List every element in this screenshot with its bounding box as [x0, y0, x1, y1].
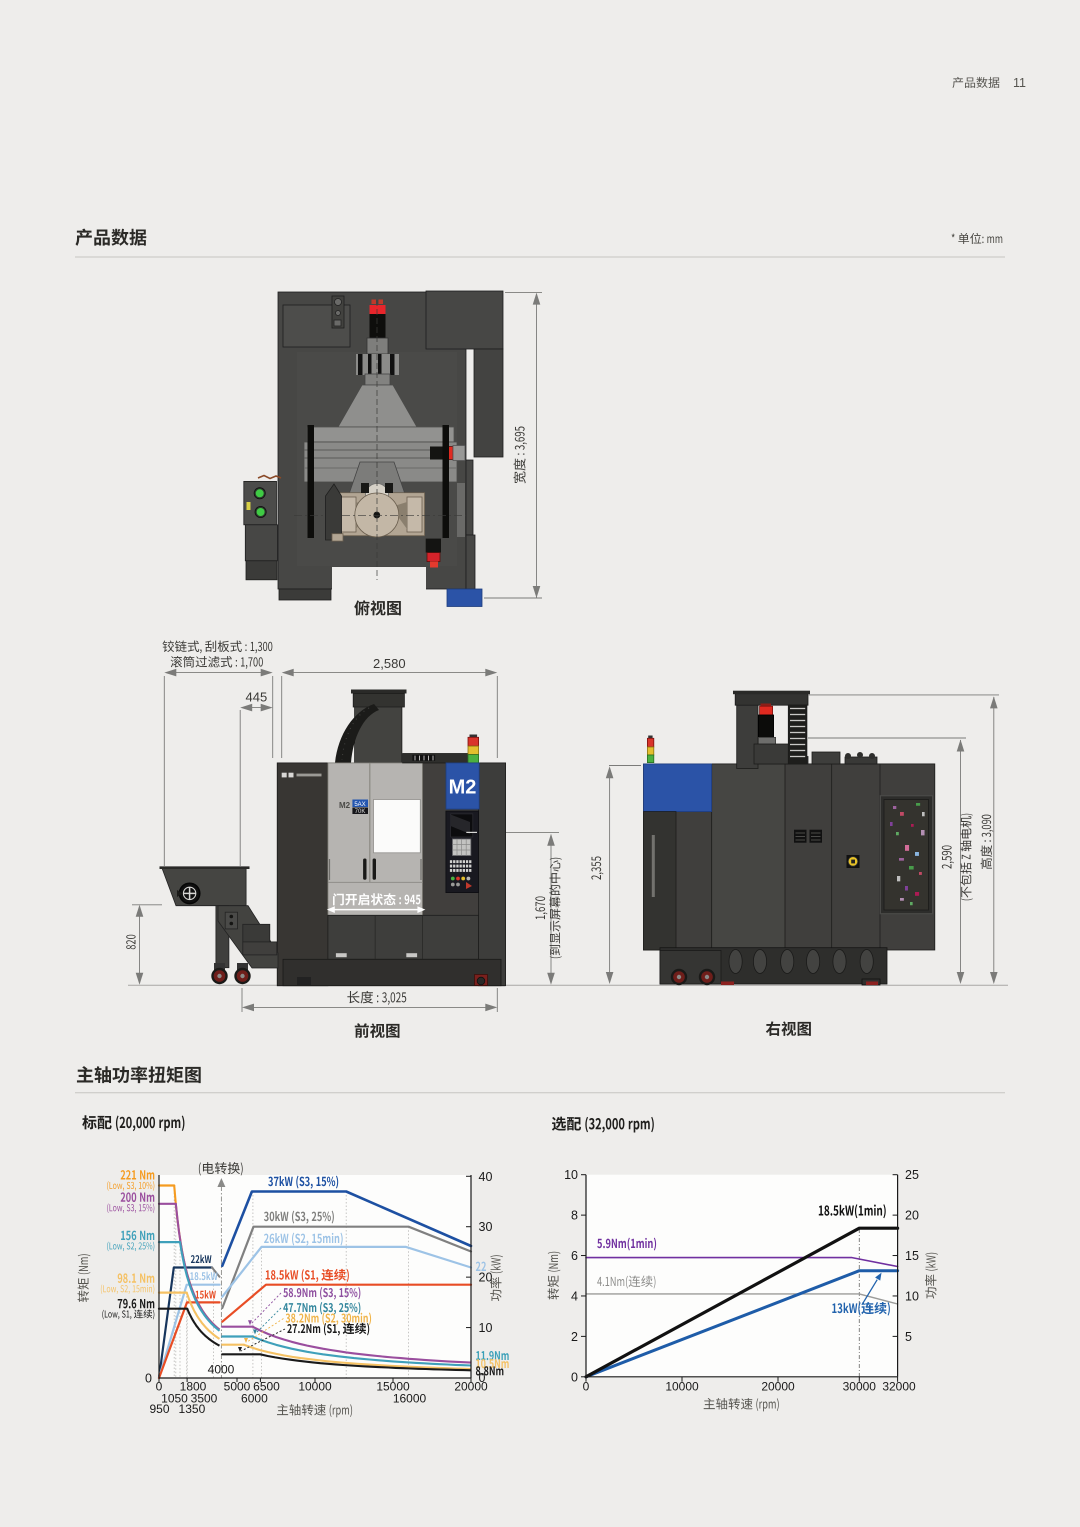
svg-text:6000: 6000: [241, 1392, 268, 1406]
svg-text:32000: 32000: [882, 1380, 916, 1394]
svg-text:8: 8: [571, 1209, 578, 1223]
svg-text:20000: 20000: [761, 1380, 795, 1394]
svg-text:30000: 30000: [843, 1380, 877, 1394]
svg-text:25: 25: [905, 1168, 919, 1182]
svg-text:10: 10: [905, 1289, 919, 1303]
svg-text:2: 2: [571, 1330, 578, 1344]
svg-text:10000: 10000: [298, 1380, 332, 1394]
svg-text:40: 40: [479, 1170, 493, 1184]
svg-text:5AX: 5AX: [354, 802, 365, 808]
svg-text:10: 10: [479, 1321, 493, 1335]
svg-text:950: 950: [149, 1402, 169, 1416]
svg-text:15: 15: [905, 1249, 919, 1263]
svg-text:4: 4: [571, 1289, 578, 1303]
svg-text:0: 0: [571, 1370, 578, 1384]
svg-text:4000: 4000: [208, 1363, 235, 1377]
svg-text:M2: M2: [449, 777, 477, 799]
svg-text:0: 0: [583, 1380, 590, 1394]
svg-text:10: 10: [564, 1168, 578, 1182]
svg-text:0: 0: [145, 1372, 152, 1386]
svg-text:2,580: 2,580: [373, 656, 406, 671]
svg-text:16000: 16000: [393, 1392, 427, 1406]
svg-text:M2: M2: [339, 801, 351, 810]
svg-text:445: 445: [246, 690, 268, 705]
svg-text:10000: 10000: [665, 1380, 699, 1394]
svg-text:1350: 1350: [179, 1402, 206, 1416]
svg-text:6: 6: [571, 1249, 578, 1263]
svg-text:30: 30: [479, 1220, 493, 1234]
svg-text:5: 5: [905, 1330, 912, 1344]
svg-text:20: 20: [905, 1209, 919, 1223]
svg-text:70K: 70K: [355, 809, 366, 815]
svg-text:11: 11: [1013, 76, 1026, 90]
